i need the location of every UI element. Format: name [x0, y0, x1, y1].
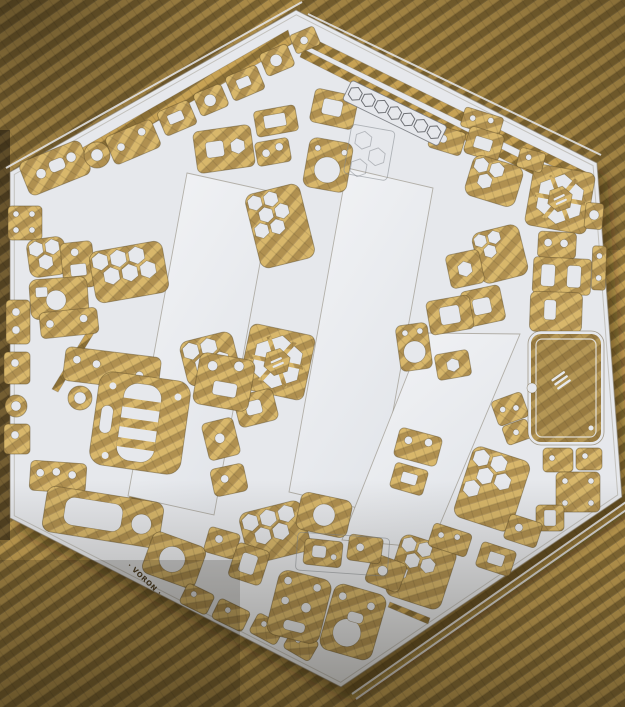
part-hole — [12, 326, 20, 334]
part-slot — [540, 264, 555, 287]
part-slot — [544, 300, 557, 320]
cut-part-body — [576, 448, 602, 470]
cut-part — [302, 137, 354, 194]
cut-part-body — [591, 246, 607, 290]
ladder-bracket-part — [88, 370, 192, 476]
cut-part — [4, 352, 30, 384]
cut-part — [529, 291, 582, 333]
part-hole — [11, 359, 19, 367]
part-hole — [589, 426, 594, 431]
part-hole — [544, 238, 552, 246]
part-slot — [439, 304, 462, 325]
cut-part-body — [537, 231, 576, 259]
cut-part — [192, 124, 255, 174]
cut-part — [591, 246, 607, 290]
part-hole — [13, 211, 19, 217]
part-hole — [29, 227, 35, 233]
cut-part — [4, 424, 30, 454]
part-slot — [566, 265, 581, 288]
cut-part-body — [6, 300, 30, 344]
part-slot — [472, 297, 493, 316]
part-hole — [36, 468, 45, 477]
cut-part — [8, 206, 42, 240]
part-hole — [74, 392, 86, 404]
part-hole — [52, 468, 61, 477]
part-hole — [560, 239, 568, 247]
part-slot — [205, 140, 225, 158]
cut-part — [434, 349, 472, 381]
part-hole — [13, 227, 19, 233]
cut-part — [425, 294, 474, 335]
cut-part-body — [8, 206, 42, 240]
cut-part — [543, 448, 573, 472]
cut-part — [537, 231, 576, 259]
part-hole — [596, 275, 602, 281]
cut-part — [576, 448, 602, 470]
cut-part — [532, 257, 592, 296]
part-hole — [12, 308, 20, 316]
cut-part — [39, 307, 99, 339]
part-hole — [549, 455, 555, 461]
door-panel — [527, 331, 604, 445]
ring-part — [68, 386, 92, 410]
cut-part-body — [4, 424, 30, 454]
cut-sheet-photo: · VORON · — [0, 0, 625, 707]
cut-part — [6, 300, 30, 344]
cut-part-body — [4, 352, 30, 384]
door-tab-hole — [527, 383, 537, 393]
part-hole — [582, 453, 588, 459]
ring-part — [84, 142, 110, 168]
cut-part — [192, 352, 256, 413]
part-hole — [11, 431, 19, 439]
part-hole — [596, 253, 602, 259]
cut-part — [584, 202, 604, 229]
lighting-bottomleft-shadow — [0, 560, 240, 707]
photo-stage: · VORON · — [0, 0, 625, 707]
part-hole — [68, 471, 77, 480]
cut-part-body — [543, 448, 573, 472]
part-slot — [35, 287, 48, 298]
part-hole — [11, 401, 21, 411]
part-slot — [70, 263, 87, 277]
part-hole — [91, 149, 103, 161]
cut-part — [395, 322, 433, 372]
ring-part — [5, 395, 27, 417]
part-hole — [29, 211, 35, 217]
cut-part — [445, 249, 485, 289]
